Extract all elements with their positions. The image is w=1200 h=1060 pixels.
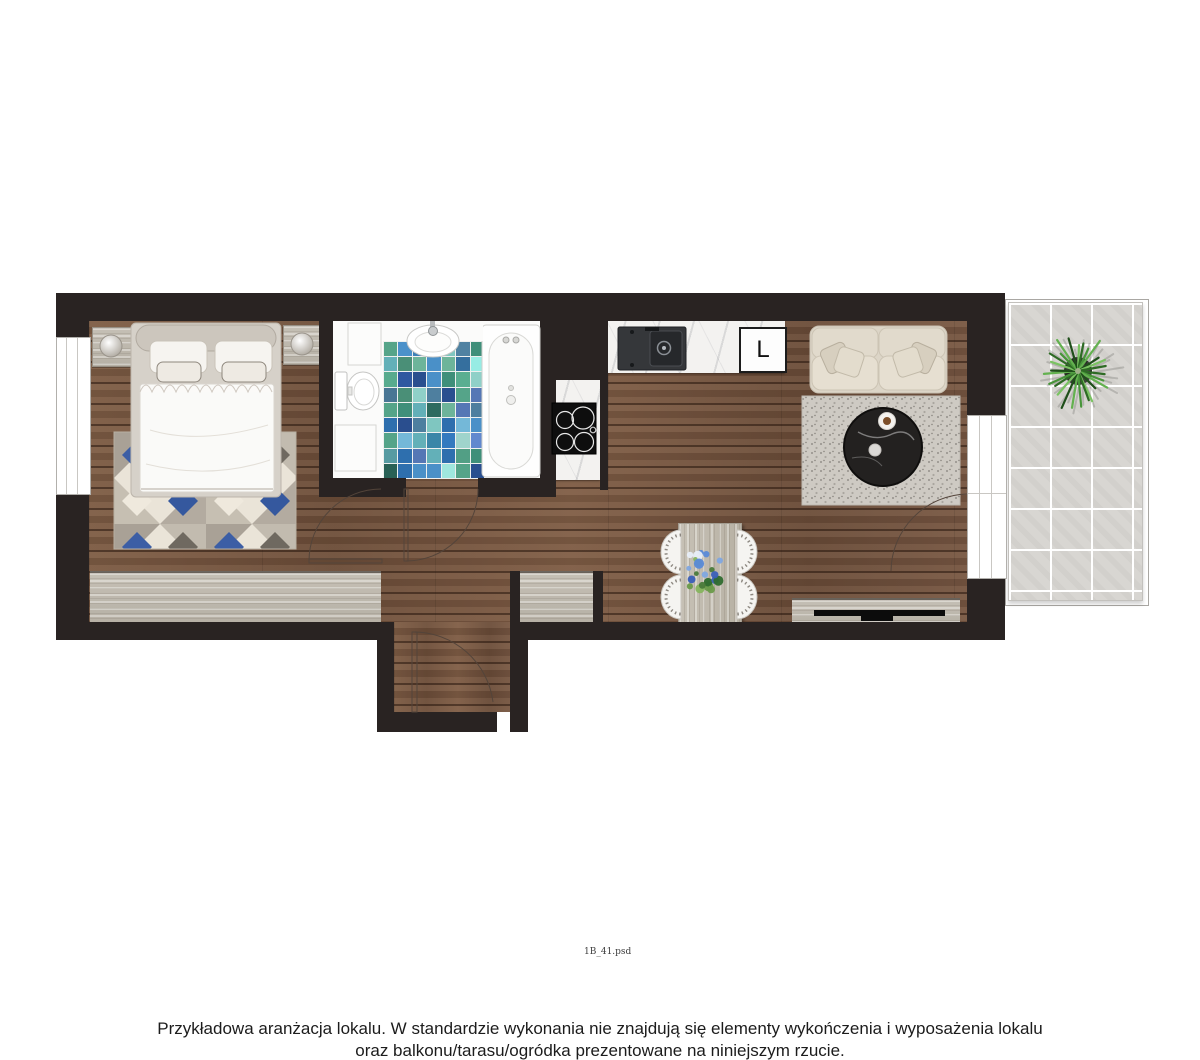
wall-top (56, 293, 1005, 321)
nightstand-right (283, 325, 323, 365)
mosaic-tile (442, 464, 455, 478)
mosaic-tile (471, 357, 484, 371)
mosaic-tile (384, 388, 397, 402)
nightstand-left (92, 327, 133, 367)
mosaic-tile (471, 464, 484, 478)
mosaic-tile (471, 342, 484, 356)
wall-vestibule-right (510, 640, 528, 732)
mosaic-tile (427, 464, 440, 478)
mosaic-tile (427, 403, 440, 417)
mosaic-tile (398, 388, 411, 402)
mosaic-tile (398, 433, 411, 447)
mosaic-tile (471, 449, 484, 463)
wall-bottom-east (510, 622, 1005, 640)
drawing-file-label: 1B_41.psd (584, 947, 631, 957)
mosaic-tile (384, 372, 397, 386)
cooktop-counter (551, 378, 600, 480)
mosaic-tile (398, 418, 411, 432)
mosaic-tile (456, 464, 469, 478)
mosaic-tile (442, 388, 455, 402)
mosaic-tile (471, 372, 484, 386)
wall-bathroom-south-left (319, 478, 406, 497)
wall-bottom-west (56, 622, 394, 640)
mosaic-tile (456, 357, 469, 371)
wall-vestibule-bottom (377, 712, 497, 732)
hall-closet (520, 571, 593, 625)
mosaic-tile (398, 403, 411, 417)
mosaic-tile (398, 449, 411, 463)
wall-bathroom-left (319, 321, 333, 497)
mosaic-tile (456, 342, 469, 356)
wall-bathroom-right (540, 378, 556, 497)
bathroom-mosaic-tiles (383, 341, 485, 479)
mosaic-tile (427, 418, 440, 432)
mosaic-tile (456, 418, 469, 432)
bedroom-wardrobe (90, 571, 381, 625)
window-bedroom (56, 337, 91, 495)
mosaic-tile (384, 403, 397, 417)
mosaic-tile (471, 433, 484, 447)
mosaic-tile (456, 403, 469, 417)
mosaic-tile (456, 372, 469, 386)
mosaic-tile (384, 464, 397, 478)
tv-sideboard (792, 598, 960, 625)
mosaic-tile (456, 433, 469, 447)
balcony-door-window (967, 415, 1007, 579)
mosaic-tile (398, 372, 411, 386)
mosaic-tile (442, 418, 455, 432)
mosaic-tile (427, 342, 440, 356)
mosaic-tile (427, 388, 440, 402)
dining-table (678, 523, 742, 625)
mosaic-tile (413, 403, 426, 417)
mosaic-tile (413, 388, 426, 402)
disclaimer-line-1: Przykładowa aranżacja lokalu. W standard… (0, 1018, 1200, 1040)
mosaic-tile (427, 372, 440, 386)
mosaic-tile (413, 342, 426, 356)
mosaic-tile (427, 433, 440, 447)
mosaic-tile (384, 449, 397, 463)
mosaic-tile (442, 403, 455, 417)
mosaic-tile (413, 372, 426, 386)
floor-vestibule (394, 622, 510, 712)
mosaic-tile (413, 449, 426, 463)
mosaic-tile (384, 342, 397, 356)
wall-kitchen-block (540, 293, 608, 380)
mosaic-tile (456, 449, 469, 463)
mosaic-tile (471, 388, 484, 402)
disclaimer-line-2: oraz balkonu/tarasu/ogródka prezentowane… (0, 1040, 1200, 1060)
fridge-label: L (756, 336, 769, 364)
wall-cooktop-right (600, 378, 608, 490)
mosaic-tile (427, 357, 440, 371)
mosaic-tile (384, 357, 397, 371)
mosaic-tile (413, 433, 426, 447)
mosaic-tile (384, 433, 397, 447)
balcony-tiles (1008, 302, 1143, 601)
mosaic-tile (471, 418, 484, 432)
floorplan-page: L (0, 0, 1200, 1060)
mosaic-tile (427, 449, 440, 463)
mosaic-tile (471, 403, 484, 417)
mosaic-tile (384, 418, 397, 432)
mosaic-tile (398, 464, 411, 478)
wall-closet-stub-left (510, 571, 520, 623)
mosaic-tile (398, 342, 411, 356)
mosaic-tile (398, 357, 411, 371)
wall-closet-stub-right (593, 571, 603, 623)
mosaic-tile (442, 433, 455, 447)
mosaic-tile (442, 342, 455, 356)
mosaic-tile (442, 449, 455, 463)
fridge-box: L (739, 327, 787, 373)
disclaimer-caption: Przykładowa aranżacja lokalu. W standard… (0, 1018, 1200, 1060)
mosaic-tile (456, 388, 469, 402)
mosaic-tile (413, 357, 426, 371)
mosaic-tile (442, 372, 455, 386)
mosaic-tile (442, 357, 455, 371)
mosaic-tile (413, 418, 426, 432)
mosaic-tile (413, 464, 426, 478)
